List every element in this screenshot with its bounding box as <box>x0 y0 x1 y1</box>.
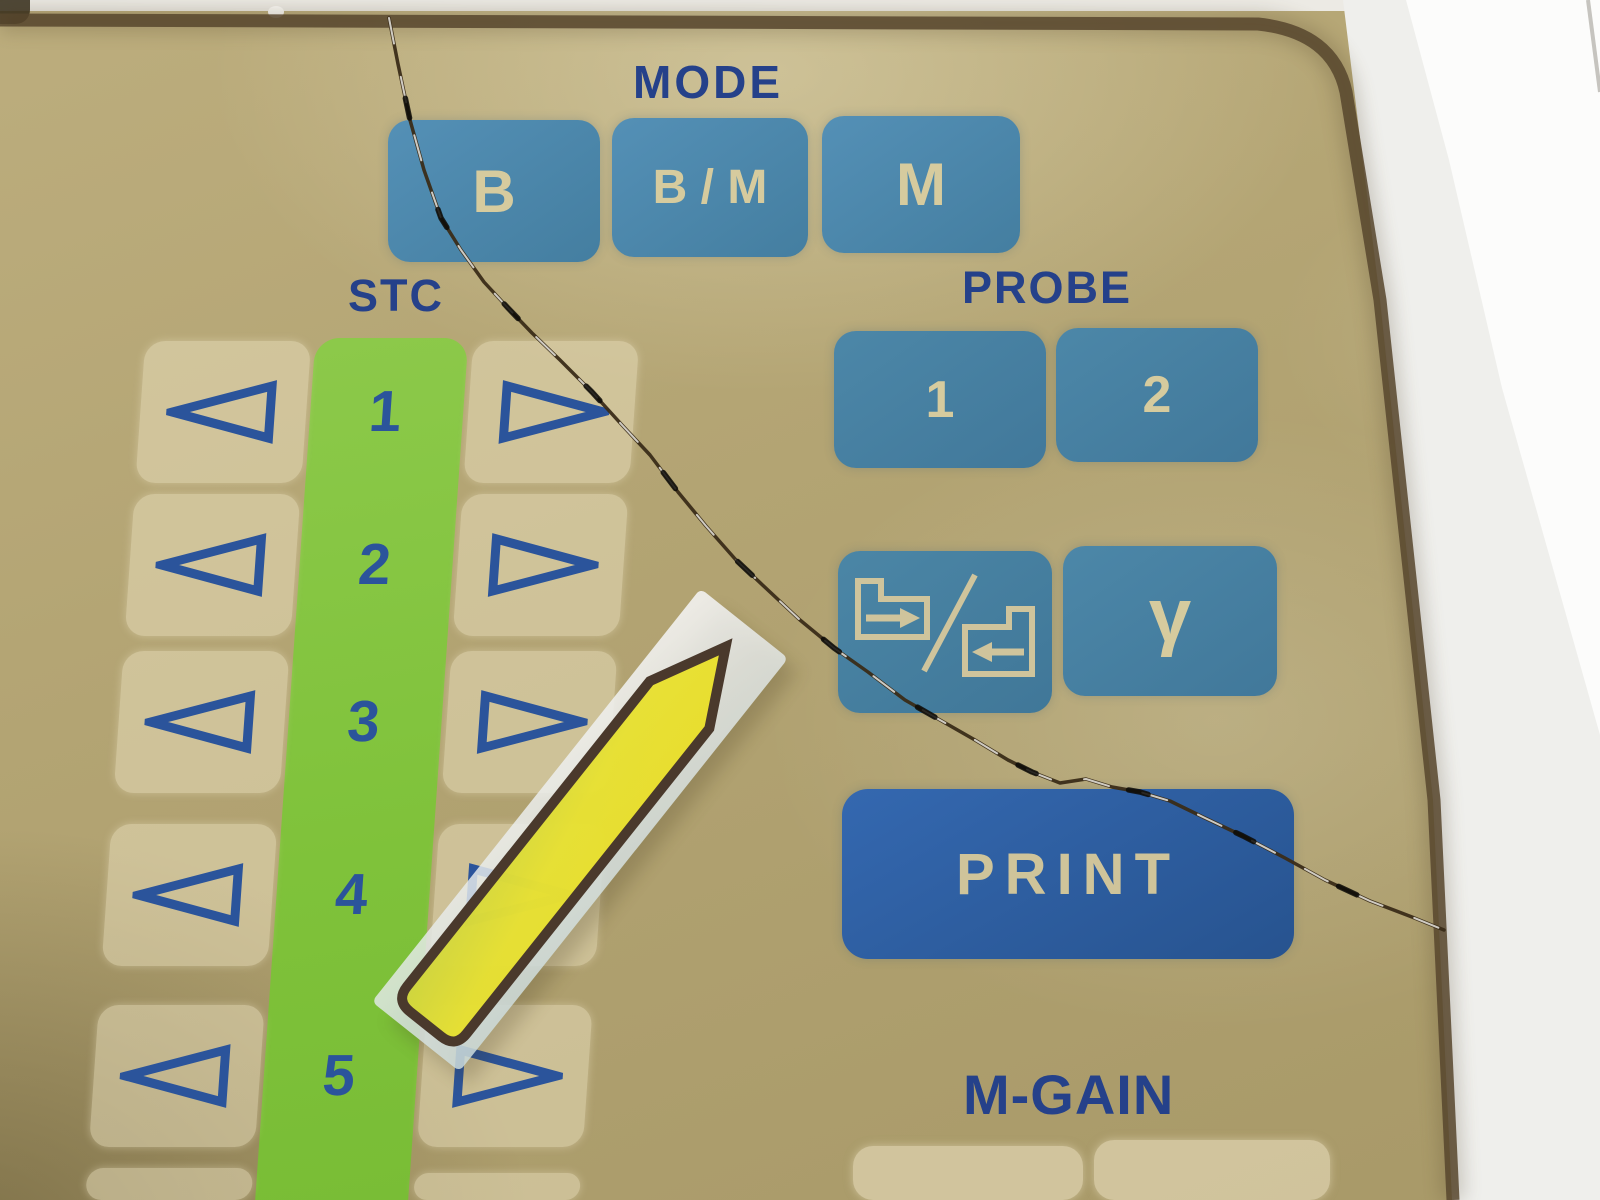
mgain-section-label: M-GAIN <box>963 1062 1174 1127</box>
ultrasound-front-panel: 1 2 3 4 5 MODE STC PROBE M-GAIN B B / M <box>0 0 1600 1200</box>
mgain-left-key[interactable] <box>853 1146 1083 1200</box>
stc-row-number: 1 <box>348 378 423 446</box>
probe-section-label: PROBE <box>962 262 1132 314</box>
triangle-left-icon <box>164 380 278 444</box>
triangle-right-icon <box>463 863 577 927</box>
frame-corner-shadow <box>0 0 30 24</box>
gamma-button[interactable]: γ <box>1063 546 1277 696</box>
stc-row-number: 5 <box>301 1042 376 1110</box>
triangle-right-icon <box>451 1044 565 1108</box>
print-button[interactable]: PRINT <box>842 789 1294 959</box>
triangle-left-icon <box>142 690 256 754</box>
mode-b-button[interactable]: B <box>388 120 600 262</box>
stc-6-right-key[interactable] <box>413 1173 581 1200</box>
stc-row-number: 3 <box>326 688 401 756</box>
mode-bm-button[interactable]: B / M <box>612 118 808 257</box>
mode-section-label: MODE <box>633 55 783 109</box>
frame-highlight <box>268 6 284 18</box>
stc-row-number: 4 <box>314 861 389 929</box>
stc-6-left-key[interactable] <box>85 1168 253 1200</box>
triangle-left-icon <box>153 533 267 597</box>
mgain-right-key[interactable] <box>1094 1140 1330 1200</box>
mode-m-button[interactable]: M <box>822 116 1020 253</box>
stc-row-number: 2 <box>337 531 412 599</box>
top-frame-edge <box>0 0 1372 11</box>
triangle-right-icon <box>475 690 589 754</box>
stc-section-label: STC <box>348 270 444 322</box>
triangle-right-icon <box>486 533 600 597</box>
probe-direction-swap-icon <box>838 551 1052 713</box>
probe-direction-button[interactable] <box>838 551 1052 713</box>
gamma-icon: γ <box>1149 572 1191 659</box>
stc-column: 1 2 3 4 5 <box>0 330 740 1200</box>
triangle-left-icon <box>118 1044 232 1108</box>
probe-1-button[interactable]: 1 <box>834 331 1046 468</box>
probe-2-button[interactable]: 2 <box>1056 328 1258 462</box>
triangle-right-icon <box>497 380 611 444</box>
triangle-left-icon <box>130 863 244 927</box>
